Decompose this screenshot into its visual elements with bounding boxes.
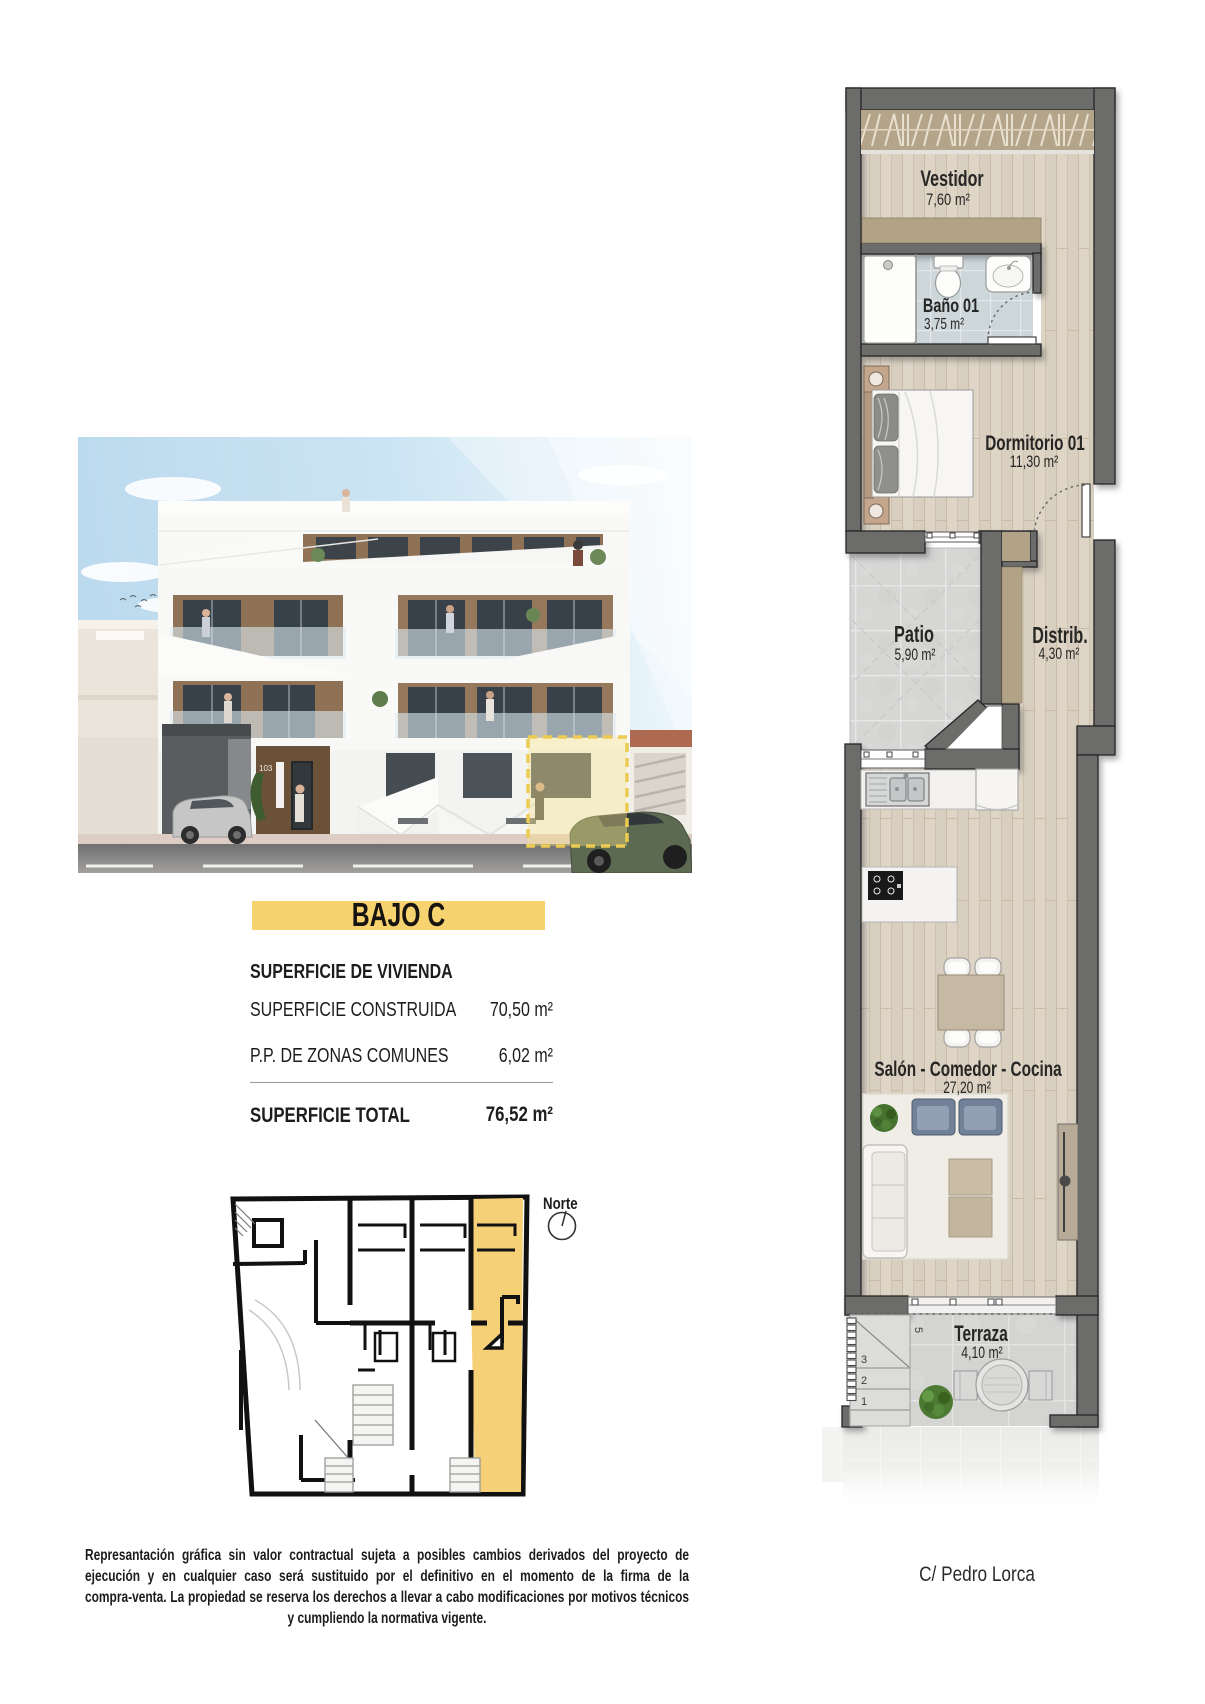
svg-text:5,90 m²: 5,90 m²: [895, 646, 936, 664]
svg-text:Salón - Comedor - Cocina: Salón - Comedor - Cocina: [874, 1057, 1062, 1081]
svg-text:11,30 m²: 11,30 m²: [1010, 452, 1059, 471]
svg-text:27,20 m²: 27,20 m²: [943, 1079, 991, 1097]
svg-text:Terraza: Terraza: [954, 1322, 1008, 1346]
svg-text:5: 5: [912, 1327, 924, 1333]
svg-text:1: 1: [861, 1396, 867, 1408]
svg-text:4,30 m²: 4,30 m²: [1039, 645, 1080, 663]
svg-text:Dormitorio 01: Dormitorio 01: [985, 431, 1085, 455]
svg-text:2: 2: [861, 1375, 867, 1387]
svg-text:3,75 m²: 3,75 m²: [924, 314, 964, 332]
svg-text:Vestidor: Vestidor: [920, 168, 984, 192]
svg-text:7,60 m²: 7,60 m²: [926, 190, 970, 209]
svg-text:Patio: Patio: [894, 622, 934, 647]
svg-text:4,10 m²: 4,10 m²: [961, 1344, 1003, 1362]
svg-text:3: 3: [861, 1354, 867, 1366]
